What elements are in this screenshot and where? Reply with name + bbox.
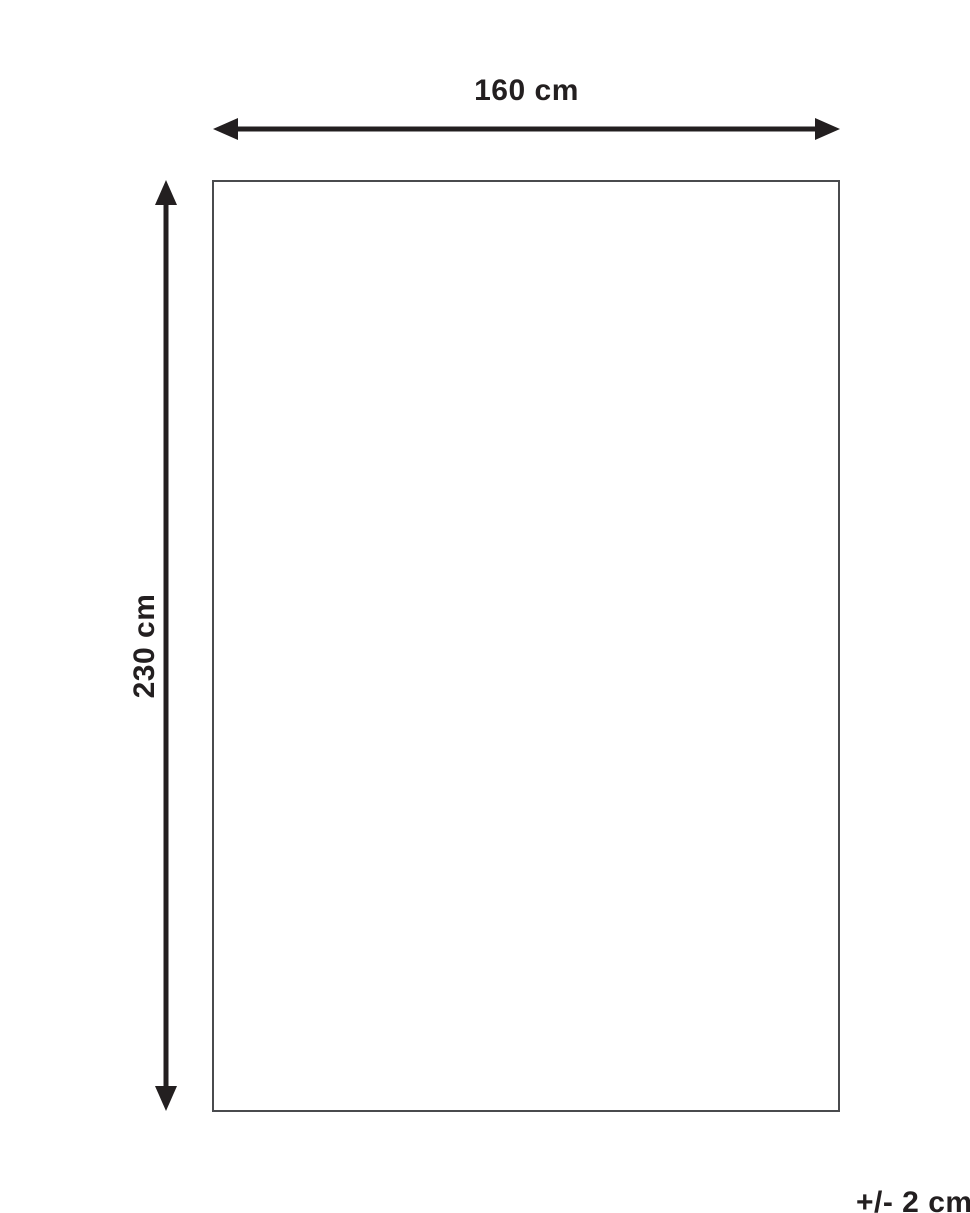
width-dimension-label: 160 cm [212,74,841,108]
tolerance-label: +/- 2 cm [856,1186,970,1213]
dimension-diagram: 160 cm 230 cm +/- 2 cm [0,0,970,1213]
product-outline-rectangle [212,180,840,1112]
height-dimension-label: 230 cm [128,594,162,699]
width-arrow-icon [212,114,841,144]
